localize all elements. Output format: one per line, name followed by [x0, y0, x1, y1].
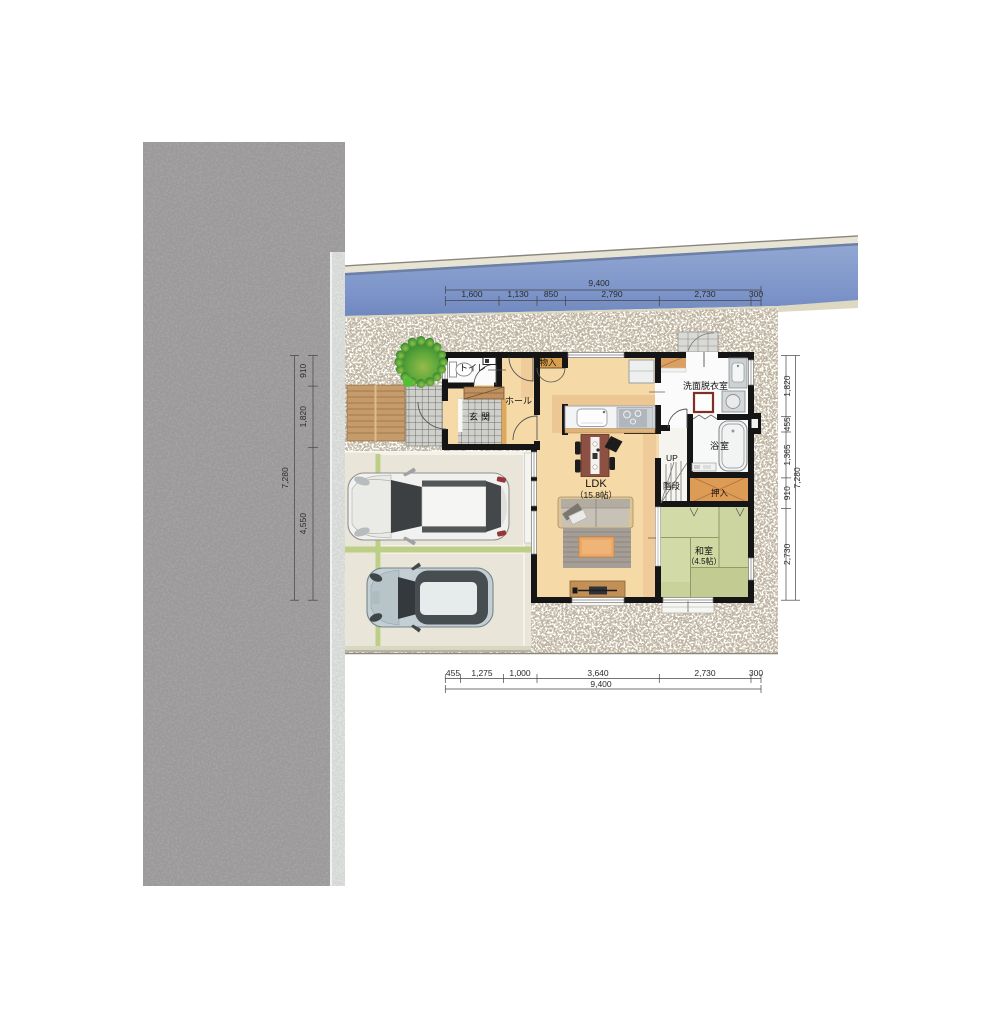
svg-text:洗面脱衣室: 洗面脱衣室 — [683, 380, 728, 391]
svg-text:押入: 押入 — [711, 488, 729, 498]
svg-text:3,640: 3,640 — [587, 668, 609, 678]
svg-text:2,790: 2,790 — [601, 289, 623, 299]
svg-text:1,000: 1,000 — [509, 668, 531, 678]
svg-text:455: 455 — [446, 668, 460, 678]
svg-text:4,550: 4,550 — [298, 513, 308, 535]
svg-text:浴室: 浴室 — [710, 440, 730, 451]
svg-text:2,730: 2,730 — [694, 668, 716, 678]
svg-text:7,280: 7,280 — [280, 467, 290, 489]
svg-text:9,400: 9,400 — [590, 679, 612, 689]
svg-text:850: 850 — [544, 289, 558, 299]
svg-text:2,730: 2,730 — [694, 289, 716, 299]
svg-text:2,730: 2,730 — [782, 543, 792, 565]
svg-text:455: 455 — [782, 417, 792, 431]
svg-text:トイレ: トイレ — [459, 363, 486, 373]
svg-text:910: 910 — [298, 363, 308, 377]
svg-text:7,280: 7,280 — [792, 467, 802, 489]
svg-text:LDK: LDK — [585, 478, 607, 490]
svg-text:（4.5帖）: （4.5帖） — [686, 556, 721, 566]
svg-text:玄関: 玄関 — [469, 411, 493, 422]
svg-text:和室: 和室 — [695, 545, 713, 556]
svg-text:ホール: ホール — [505, 396, 532, 406]
svg-text:1,130: 1,130 — [507, 289, 529, 299]
svg-text:1,600: 1,600 — [461, 289, 483, 299]
svg-text:9,400: 9,400 — [588, 278, 610, 288]
svg-text:1,820: 1,820 — [782, 375, 792, 397]
svg-text:（15.8帖）: （15.8帖） — [575, 490, 617, 500]
svg-text:1,275: 1,275 — [471, 668, 493, 678]
svg-text:910: 910 — [782, 486, 792, 500]
svg-text:物入: 物入 — [540, 358, 558, 368]
svg-text:UP: UP — [666, 453, 678, 463]
svg-text:階段: 階段 — [663, 481, 681, 491]
svg-text:1,365: 1,365 — [782, 444, 792, 466]
svg-text:1,820: 1,820 — [298, 406, 308, 428]
